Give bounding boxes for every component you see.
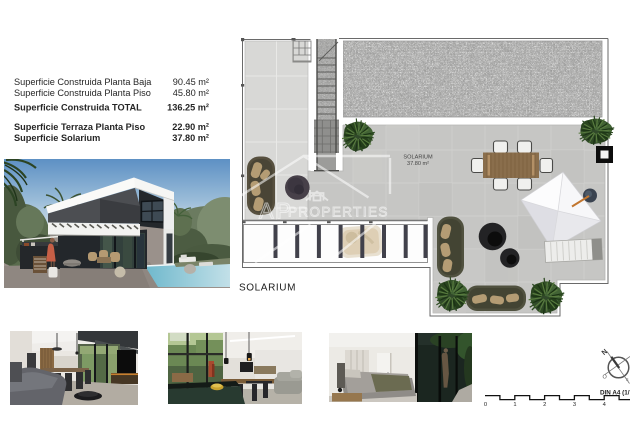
svg-text:Superficie Terraza Planta Piso: Superficie Terraza Planta Piso xyxy=(14,122,145,132)
svg-text:PROPERTIES: PROPERTIES xyxy=(288,205,389,220)
svg-text:37.80 m²: 37.80 m² xyxy=(407,161,429,167)
svg-text:Superficie Construida TOTAL: Superficie Construida TOTAL xyxy=(14,103,142,113)
svg-text:136.25 m²: 136.25 m² xyxy=(167,103,209,113)
svg-text:N: N xyxy=(601,348,609,357)
svg-text:O: O xyxy=(603,375,608,381)
svg-text:SOLARIUM: SOLARIUM xyxy=(403,155,433,161)
svg-text:22.90 m²: 22.90 m² xyxy=(172,122,209,132)
svg-text:4: 4 xyxy=(603,402,607,408)
svg-text:45.80 m²: 45.80 m² xyxy=(173,88,209,98)
svg-text:Superficie Construida Planta B: Superficie Construida Planta Baja xyxy=(14,77,152,87)
svg-text:Superficie Construida Planta P: Superficie Construida Planta Piso xyxy=(14,88,151,98)
svg-text:37.80 m²: 37.80 m² xyxy=(172,133,209,143)
svg-text:1: 1 xyxy=(513,402,516,408)
svg-text:2: 2 xyxy=(543,402,546,408)
svg-text:0: 0 xyxy=(484,402,487,408)
svg-text:3: 3 xyxy=(573,402,576,408)
svg-text:90.45 m²: 90.45 m² xyxy=(173,77,209,87)
svg-text:SOLARIUM: SOLARIUM xyxy=(239,283,296,294)
svg-text:Superficie Solarium: Superficie Solarium xyxy=(14,133,100,143)
